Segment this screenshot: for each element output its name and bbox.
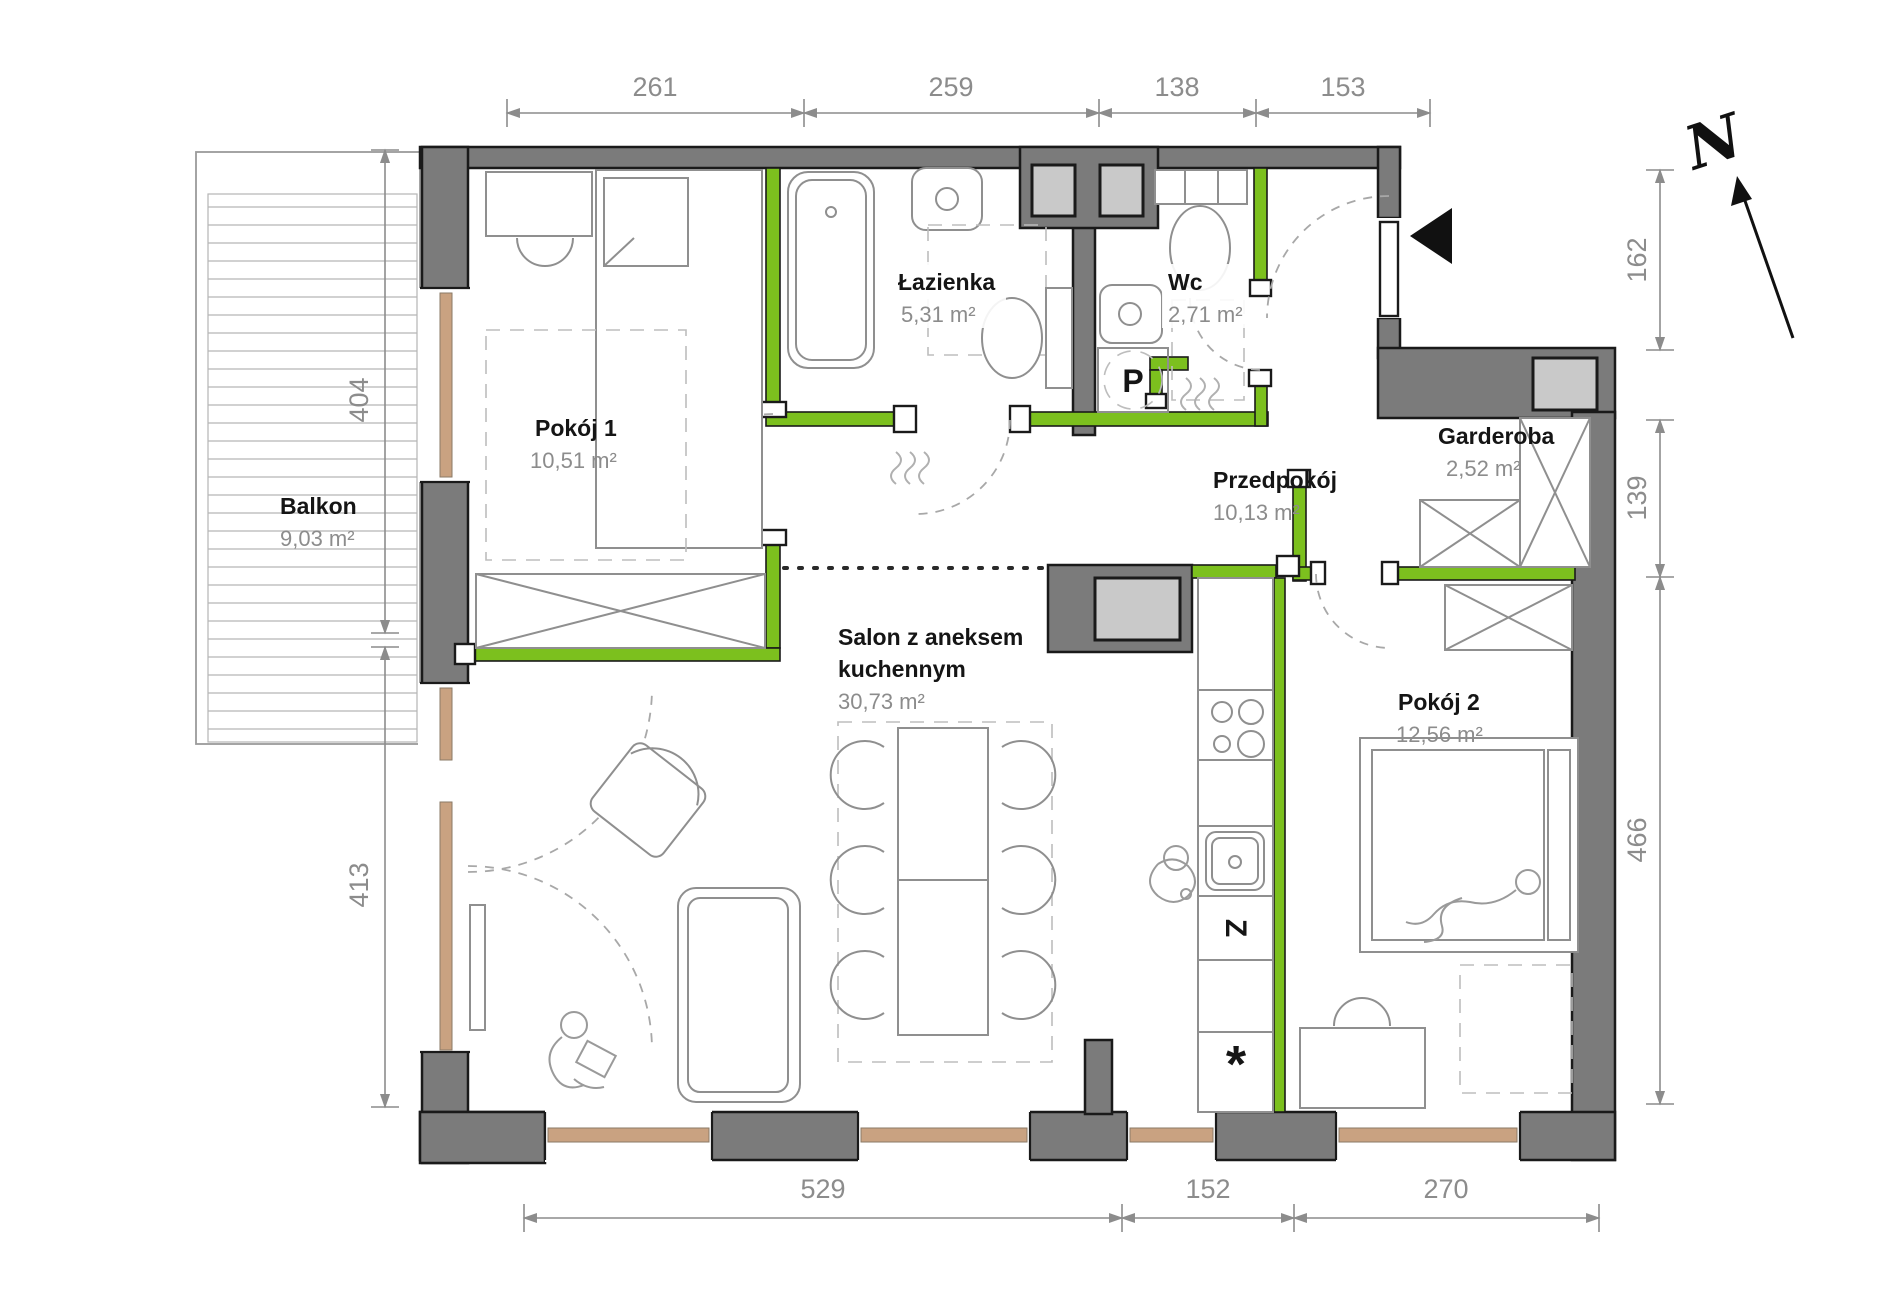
radiator-icon xyxy=(891,378,1219,484)
door-arc-pokoj2 xyxy=(1316,574,1390,648)
bed-pokoj2 xyxy=(1360,738,1578,952)
room-label-przedpokoj: Przedpokój 10,13 m² xyxy=(1213,467,1337,525)
entry-triangle-icon xyxy=(1410,208,1452,264)
balcony-door-sill xyxy=(440,688,452,760)
svg-text:10,13 m²: 10,13 m² xyxy=(1213,500,1300,525)
room-labels: Balkon 9,03 m² Pokój 1 10,51 m² Łazienka… xyxy=(280,262,1555,747)
dim-right-1: 162 xyxy=(1622,237,1652,282)
svg-text:12,56 m²: 12,56 m² xyxy=(1396,722,1483,747)
shaft-box xyxy=(1100,165,1143,216)
sofa xyxy=(678,888,800,1102)
room-label-salon: Salon z aneksem kuchennym 30,73 m² xyxy=(838,624,1023,714)
bed-pokoj1 xyxy=(596,170,762,548)
dining-table xyxy=(898,728,988,1035)
dim-right-2: 139 xyxy=(1622,475,1652,520)
floorplan-drawing: N 261 259 138 153 529 152 270 404 xyxy=(0,0,1900,1306)
dim-bottom-2: 152 xyxy=(1185,1174,1230,1204)
bathtub xyxy=(788,172,874,368)
armchair xyxy=(587,730,717,860)
sink-lazienka xyxy=(912,168,982,230)
dim-left-2: 413 xyxy=(344,862,374,907)
wardrobe-pokoj2 xyxy=(1445,585,1572,650)
north-label: N xyxy=(1675,100,1753,185)
svg-text:Balkon: Balkon xyxy=(280,493,357,519)
north-arrow-icon: N xyxy=(1675,100,1793,338)
person-standing xyxy=(1150,846,1195,902)
dim-top-4: 153 xyxy=(1320,72,1365,102)
chair-pokoj2 xyxy=(1334,998,1390,1026)
svg-text:10,51 m²: 10,51 m² xyxy=(530,448,617,473)
floorplan-page: N 261 259 138 153 529 152 270 404 xyxy=(0,0,1900,1306)
svg-text:30,73 m²: 30,73 m² xyxy=(838,689,925,714)
svg-text:Pokój 1: Pokój 1 xyxy=(535,415,617,441)
svg-text:2,71 m²: 2,71 m² xyxy=(1168,302,1243,327)
desk-pokoj1 xyxy=(486,172,592,236)
svg-text:Garderoba: Garderoba xyxy=(1438,423,1555,449)
person-reading xyxy=(550,1012,616,1088)
room-label-lazienka: Łazienka 5,31 m² xyxy=(890,262,1006,328)
svg-text:5,31 m²: 5,31 m² xyxy=(901,302,976,327)
furniture xyxy=(470,168,1590,1112)
entry-door-leaf xyxy=(1380,222,1398,316)
toilet-cistern-lazienka xyxy=(1046,288,1072,388)
tv-panel xyxy=(470,905,485,1030)
toilet-cistern-wc xyxy=(1155,170,1247,204)
svg-text:Pokój 2: Pokój 2 xyxy=(1398,689,1480,715)
room-label-wc: Wc 2,71 m² xyxy=(1162,264,1246,328)
dim-top-1: 261 xyxy=(632,72,677,102)
door-arc-balcony-2 xyxy=(468,866,652,1050)
kitchen-shaft-box xyxy=(1095,578,1180,640)
svg-text:Wc: Wc xyxy=(1168,269,1203,295)
desk-pokoj2 xyxy=(1300,1028,1425,1108)
svg-text:2,52 m²: 2,52 m² xyxy=(1446,456,1521,481)
fridge-star-letter: * xyxy=(1226,1036,1247,1094)
dim-right-3: 466 xyxy=(1622,817,1652,862)
shaft-box xyxy=(1032,165,1075,216)
washing-machine-letter: P xyxy=(1122,363,1143,399)
room-label-pokoj2: Pokój 2 12,56 m² xyxy=(1396,689,1483,747)
dim-left-1: 404 xyxy=(344,377,374,422)
meter-box xyxy=(1533,358,1597,410)
dim-top-3: 138 xyxy=(1154,72,1199,102)
svg-text:Salon z aneksem: Salon z aneksem xyxy=(838,624,1023,650)
dim-bottom-1: 529 xyxy=(800,1174,845,1204)
svg-text:9,03 m²: 9,03 m² xyxy=(280,526,355,551)
balcony-window-sill xyxy=(440,802,452,1050)
svg-text:Łazienka: Łazienka xyxy=(898,269,995,295)
dim-bottom-3: 270 xyxy=(1423,1174,1468,1204)
chair-pokoj1 xyxy=(517,238,573,266)
dim-top-2: 259 xyxy=(928,72,973,102)
svg-text:kuchennym: kuchennym xyxy=(838,656,966,682)
door-arc-lazienka xyxy=(916,420,1010,514)
svg-text:Przedpokój: Przedpokój xyxy=(1213,467,1337,493)
window-sill xyxy=(440,293,452,477)
door-arc-entry xyxy=(1267,196,1389,318)
sink-wc xyxy=(1100,285,1162,343)
balcony xyxy=(196,152,420,744)
kitchen-sink-icon xyxy=(1206,832,1264,890)
dishwasher-letter: Z xyxy=(1219,919,1252,937)
